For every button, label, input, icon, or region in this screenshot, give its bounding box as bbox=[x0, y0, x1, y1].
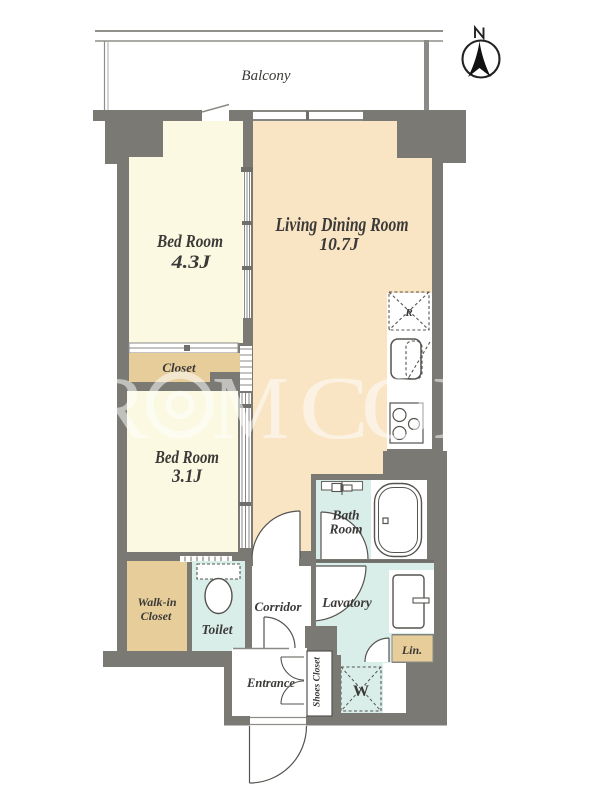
svg-text:Bed Room: Bed Room bbox=[156, 231, 223, 251]
svg-text:R: R bbox=[86, 359, 148, 458]
svg-text:Lin.: Lin. bbox=[401, 643, 422, 657]
svg-text:R: R bbox=[432, 359, 496, 458]
svg-text:Corridor: Corridor bbox=[255, 599, 303, 614]
svg-text:R: R bbox=[404, 307, 412, 319]
svg-text:3.1J: 3.1J bbox=[171, 466, 202, 487]
svg-text:10.7J: 10.7J bbox=[319, 234, 360, 254]
svg-text:Walk-in: Walk-in bbox=[137, 595, 176, 609]
svg-text:M: M bbox=[212, 359, 289, 458]
svg-text:Bed Room: Bed Room bbox=[154, 447, 219, 467]
svg-text:Toilet: Toilet bbox=[201, 622, 233, 637]
svg-text:Lavatory: Lavatory bbox=[321, 595, 372, 610]
svg-text:Room: Room bbox=[328, 522, 362, 537]
svg-text:W: W bbox=[353, 683, 369, 700]
svg-text:Balcony: Balcony bbox=[241, 68, 290, 84]
svg-text:Bath: Bath bbox=[331, 508, 359, 523]
svg-text:O: O bbox=[361, 359, 433, 458]
svg-text:Closet: Closet bbox=[141, 609, 172, 623]
svg-text:4.3J: 4.3J bbox=[170, 252, 211, 273]
svg-text:Shoes Closet: Shoes Closet bbox=[313, 657, 323, 707]
svg-text:C: C bbox=[299, 359, 369, 458]
svg-text:Living Dining Room: Living Dining Room bbox=[275, 214, 409, 236]
